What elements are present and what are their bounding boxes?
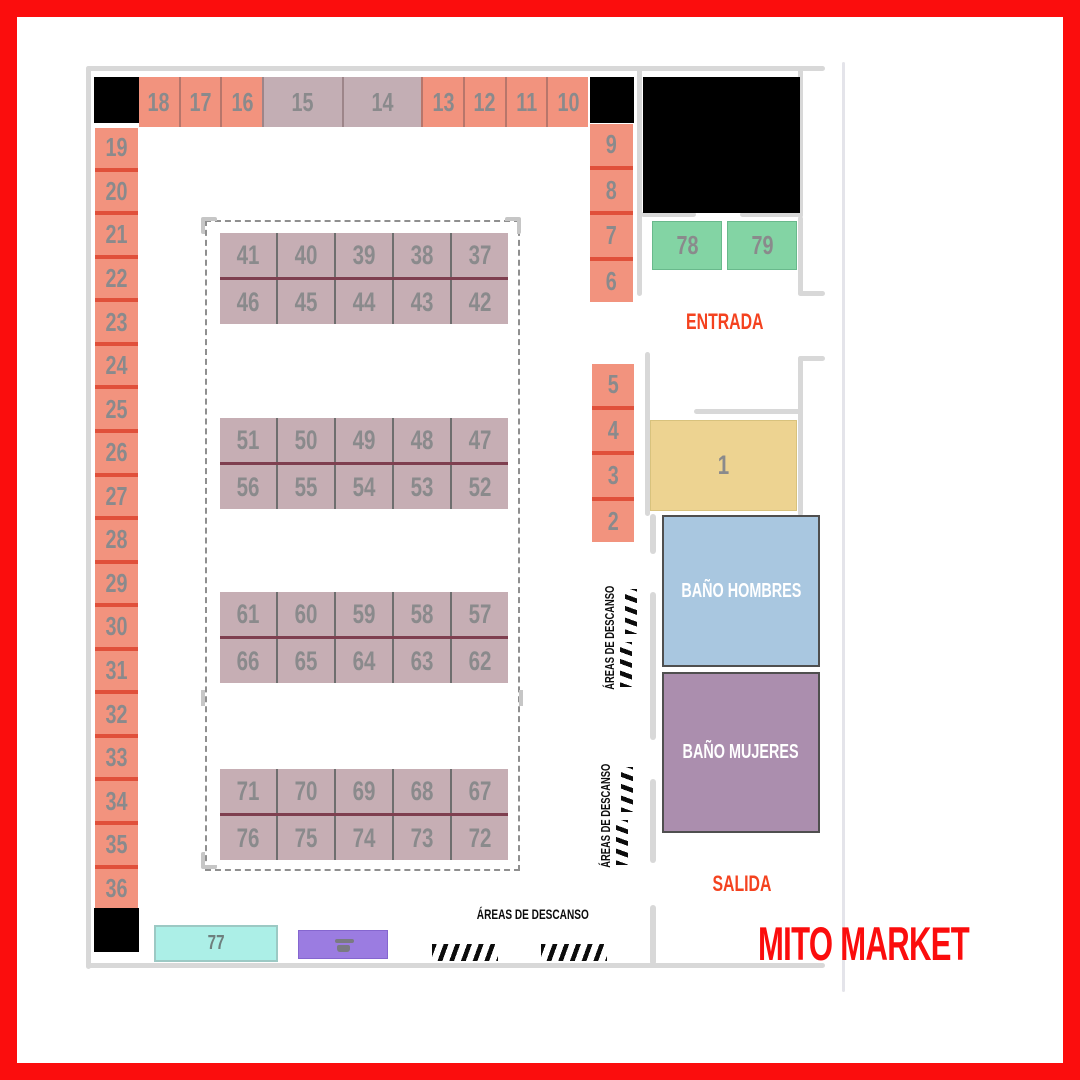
stall-number: 19 (106, 132, 128, 163)
stall-number: 56 (237, 472, 260, 503)
stall: 33 (95, 734, 138, 778)
stall: 27 (95, 473, 138, 517)
stall-number: 59 (353, 599, 376, 630)
stall: 57 (450, 592, 508, 636)
stall-number: 3 (608, 460, 619, 491)
rest-area-label-bottom: ÁREAS DE DESCANSO (425, 906, 640, 922)
stall-number: 26 (106, 437, 128, 468)
stall-number: 1 (718, 450, 729, 481)
stripe-block (625, 589, 637, 634)
stall-number: 51 (237, 425, 260, 456)
stall-number: 54 (353, 472, 376, 503)
stall: 26 (95, 429, 138, 473)
stall: 48 (392, 418, 450, 462)
stall-number: 66 (237, 646, 260, 677)
wall-bottom (86, 963, 825, 968)
stall: 36 (95, 865, 138, 909)
stall-16: 16 (220, 77, 262, 127)
stall: 63 (392, 639, 450, 683)
stall: 68 (392, 769, 450, 813)
wall-top (86, 66, 825, 71)
stall: 8 (590, 166, 633, 212)
stall-17: 17 (179, 77, 221, 127)
stall-number: 47 (469, 425, 492, 456)
stall-row: 7170696867 (220, 769, 508, 813)
stall: 60 (276, 592, 334, 636)
stall: 58 (392, 592, 450, 636)
wall-right-stall-one (798, 356, 803, 516)
stall-number: 29 (106, 568, 128, 599)
stall: 50 (276, 418, 334, 462)
stall-number: 78 (676, 230, 698, 261)
hazard-stripes (616, 767, 628, 865)
mens-bathroom: BAÑO HOMBRES (662, 515, 820, 667)
stall: 78 (652, 221, 722, 270)
stall: 71 (220, 769, 276, 813)
black-entrance-block (643, 77, 800, 213)
stall-number: 55 (295, 472, 318, 503)
stall-number: 23 (106, 307, 128, 338)
wall-above-stall-one (694, 409, 801, 414)
stall: 43 (392, 280, 450, 324)
stall-number: 13 (432, 87, 454, 118)
stall: 66 (220, 639, 276, 683)
stall-number: 79 (751, 230, 773, 261)
stripe-block (620, 642, 632, 687)
stall: 32 (95, 690, 138, 734)
wall-left (86, 66, 91, 969)
stall-number: 32 (106, 699, 128, 730)
stall-row: 5655545352 (220, 465, 508, 509)
stall: 69 (334, 769, 392, 813)
stall: 42 (450, 280, 508, 324)
stall: 51 (220, 418, 276, 462)
center-stall-block-2: 5150494847 5655545352 (220, 418, 508, 509)
black-corner-bottom-left (94, 908, 139, 952)
stall-number: 43 (411, 287, 434, 318)
stall: 45 (276, 280, 334, 324)
stall: 2 (592, 497, 634, 543)
stall-number: 33 (106, 742, 128, 773)
stall: 24 (95, 342, 138, 386)
stripe-block (616, 820, 628, 865)
stall-14: 14 (342, 77, 422, 127)
stall-row-top: 18 17 16 15 14 13 12 11 10 (139, 77, 588, 127)
stall: 30 (95, 603, 138, 647)
stall-number: 61 (237, 599, 260, 630)
stall: 31 (95, 647, 138, 691)
stall: 62 (450, 639, 508, 683)
stall-number: 40 (295, 240, 318, 271)
pillar-mark (201, 217, 217, 234)
wall-bath-corridor-1 (650, 514, 656, 554)
stall: 79 (727, 221, 797, 270)
stall-number: 70 (295, 776, 318, 807)
stall-number: 11 (516, 87, 537, 118)
rest-area-marker-2: ÁREAS DE DESCANSO (598, 760, 644, 872)
stall: 54 (334, 465, 392, 509)
center-stall-block-3: 6160595857 6665646362 (220, 592, 508, 683)
mens-bathroom-label: BAÑO HOMBRES (681, 580, 801, 603)
stall-number: 58 (411, 599, 434, 630)
womens-bathroom: BAÑO MUJERES (662, 672, 820, 833)
stall-row: 5150494847 (220, 418, 508, 462)
stall-number: 77 (208, 932, 225, 955)
stall-number: 71 (237, 776, 260, 807)
stall-number: 46 (237, 287, 260, 318)
stall-row: 4645444342 (220, 280, 508, 324)
stall: 5 (592, 364, 634, 406)
stall-number: 14 (371, 87, 393, 118)
stall-number: 18 (148, 87, 170, 118)
stall-number: 9 (606, 129, 617, 160)
stall-number: 62 (469, 646, 492, 677)
stall-number: 7 (606, 220, 617, 251)
pillar-mark (201, 690, 217, 706)
stall-number: 27 (106, 481, 128, 512)
exit-label: SALIDA (672, 871, 812, 897)
rest-area-marker-1: ÁREAS DE DESCANSO (602, 582, 648, 694)
entrance-label: ENTRADA (640, 309, 810, 335)
stall-number: 8 (606, 175, 617, 206)
stall-number: 10 (557, 87, 579, 118)
stall: 59 (334, 592, 392, 636)
stall: 55 (276, 465, 334, 509)
rest-area-label: ÁREAS DE DESCANSO (602, 566, 617, 710)
brand-title: MITO MARKET (758, 916, 969, 971)
stall-number: 76 (237, 823, 260, 854)
stall-number: 39 (353, 240, 376, 271)
stall-77: 77 (154, 925, 278, 962)
stall-row: 7675747372 (220, 816, 508, 860)
wall-bath-corridor-3 (650, 779, 656, 863)
stall-number: 65 (295, 646, 318, 677)
stall-number: 60 (295, 599, 318, 630)
stall: 56 (220, 465, 276, 509)
stall: 75 (276, 816, 334, 860)
entrance-stall-row: 7879 (652, 221, 797, 270)
stall: 19 (95, 128, 138, 168)
stall: 23 (95, 298, 138, 342)
stall: 67 (450, 769, 508, 813)
stall-number: 2 (608, 506, 619, 537)
stall-number: 17 (190, 87, 212, 118)
stall-number: 36 (106, 873, 128, 904)
stall: 74 (334, 816, 392, 860)
wall-right-mid (798, 216, 803, 296)
stall: 65 (276, 639, 334, 683)
stall-number: 67 (469, 776, 492, 807)
center-stall-block-4: 7170696867 7675747372 (220, 769, 508, 860)
stall-number: 75 (295, 823, 318, 854)
stall: 37 (450, 233, 508, 277)
stall-13: 13 (421, 77, 463, 127)
stall-row: 6665646362 (220, 639, 508, 683)
womens-bathroom-label: BAÑO MUJERES (683, 741, 799, 764)
stall: 61 (220, 592, 276, 636)
stall-number: 37 (469, 240, 492, 271)
stall-number: 68 (411, 776, 434, 807)
wall-exit-corridor (650, 905, 656, 965)
stall: 22 (95, 255, 138, 299)
stall-number: 63 (411, 646, 434, 677)
stall-11: 11 (505, 77, 547, 127)
stall: 28 (95, 516, 138, 560)
hazard-stripes (620, 589, 632, 687)
stall-number: 41 (237, 240, 260, 271)
stall: 44 (334, 280, 392, 324)
stall-number: 72 (469, 823, 492, 854)
market-floor-plan: 18 17 16 15 14 13 12 11 10 1920212223242… (0, 0, 1080, 1080)
wall-outer-corridor-line (842, 62, 845, 992)
stall-column-left: 192021222324252627282930313233343536 (95, 128, 138, 908)
stall-number: 12 (474, 87, 496, 118)
stall: 46 (220, 280, 276, 324)
stall-number: 35 (106, 829, 128, 860)
stall-number: 25 (106, 394, 128, 425)
stall-number: 42 (469, 287, 492, 318)
stall-column-right-upper: 9876 (590, 124, 633, 302)
stall-18: 18 (139, 77, 179, 127)
stall: 70 (276, 769, 334, 813)
stall-number: 6 (606, 266, 617, 297)
wall-bath-corridor-2 (650, 592, 656, 740)
wall-entrance-left (637, 66, 642, 296)
stall-number: 73 (411, 823, 434, 854)
wall-elbow-upper (798, 291, 825, 296)
kiosk-stall (298, 930, 388, 959)
stall: 7 (590, 211, 633, 257)
stall-column-right-lower: 5432 (592, 364, 634, 542)
stall: 49 (334, 418, 392, 462)
stall: 9 (590, 124, 633, 166)
stall-number: 31 (106, 655, 128, 686)
pillar-mark (201, 852, 217, 869)
stall-number: 52 (469, 472, 492, 503)
stall: 76 (220, 816, 276, 860)
stall-row: 4140393837 (220, 233, 508, 277)
black-corner-top-left (94, 77, 139, 123)
stall-number: 34 (106, 786, 128, 817)
stall: 52 (450, 465, 508, 509)
stall-number: 69 (353, 776, 376, 807)
stall: 29 (95, 560, 138, 604)
stall-number: 4 (608, 415, 619, 446)
stall: 53 (392, 465, 450, 509)
stall: 20 (95, 168, 138, 212)
stall: 64 (334, 639, 392, 683)
rest-area-label: ÁREAS DE DESCANSO (598, 744, 613, 888)
stall: 38 (392, 233, 450, 277)
stall: 73 (392, 816, 450, 860)
stripe-block (621, 767, 633, 812)
stall: 39 (334, 233, 392, 277)
stall-number: 50 (295, 425, 318, 456)
stall: 25 (95, 385, 138, 429)
stall: 3 (592, 451, 634, 497)
stall: 35 (95, 821, 138, 865)
stripe-block (432, 944, 498, 961)
stall-12: 12 (463, 77, 505, 127)
stall: 47 (450, 418, 508, 462)
stall: 4 (592, 406, 634, 452)
stall-number: 5 (608, 369, 619, 400)
stall-number: 24 (106, 350, 128, 381)
stall-number: 45 (295, 287, 318, 318)
stall-10: 10 (546, 77, 588, 127)
center-stall-block-1: 4140393837 4645444342 (220, 233, 508, 324)
stall: 72 (450, 816, 508, 860)
pillar-mark (507, 690, 523, 706)
stall: 21 (95, 211, 138, 255)
stall-number: 22 (106, 263, 128, 294)
pillar-mark (505, 217, 521, 234)
stall-1: 1 (650, 420, 797, 511)
stall: 40 (276, 233, 334, 277)
stall-number: 48 (411, 425, 434, 456)
stall-number: 16 (231, 87, 253, 118)
black-corner-top-right (590, 77, 634, 123)
stall-number: 49 (353, 425, 376, 456)
stall-number: 21 (106, 219, 128, 250)
stall-number: 74 (353, 823, 376, 854)
stall-number: 15 (292, 87, 314, 118)
stall-number: 28 (106, 524, 128, 555)
stall: 34 (95, 777, 138, 821)
stall-number: 20 (106, 176, 128, 207)
stall-number: 38 (411, 240, 434, 271)
stall-number: 44 (353, 287, 376, 318)
stall-number: 53 (411, 472, 434, 503)
stall-number: 64 (353, 646, 376, 677)
stall-row: 6160595857 (220, 592, 508, 636)
stall: 41 (220, 233, 276, 277)
stall-number: 57 (469, 599, 492, 630)
stripe-block (541, 944, 607, 961)
stall-number: 30 (106, 611, 128, 642)
stall-15: 15 (262, 77, 342, 127)
kiosk-icon (332, 938, 354, 952)
stall: 6 (590, 257, 633, 303)
